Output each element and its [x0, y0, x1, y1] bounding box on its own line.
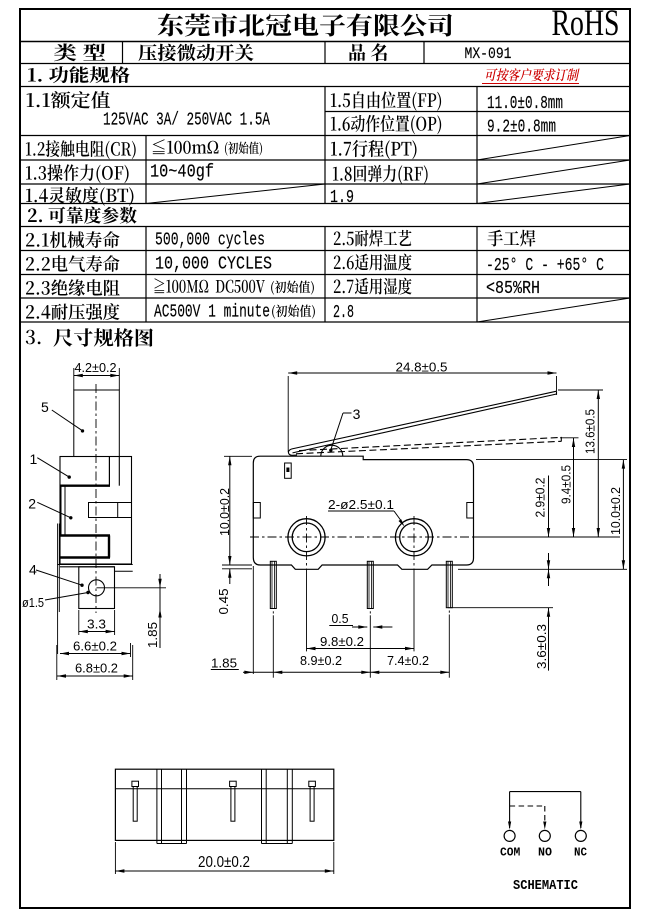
svg-text:COM: COM — [500, 846, 520, 859]
svg-text:125VAC 3A/ 250VAC 1.5A: 125VAC 3A/ 250VAC 1.5A — [103, 110, 271, 131]
svg-text:9.2±0.8mm: 9.2±0.8mm — [487, 117, 556, 138]
svg-text:6.6±0.2: 6.6±0.2 — [73, 640, 117, 654]
svg-text:13.6±0.5: 13.6±0.5 — [584, 409, 598, 454]
svg-text:7.4±0.2: 7.4±0.2 — [387, 654, 429, 668]
svg-text:20.0±0.2: 20.0±0.2 — [198, 854, 250, 871]
svg-text:6.8±0.2: 6.8±0.2 — [75, 662, 118, 676]
svg-text:3.6±0.3: 3.6±0.3 — [535, 624, 549, 669]
svg-text:0.45: 0.45 — [217, 589, 231, 615]
svg-text:3: 3 — [353, 406, 361, 422]
svg-text:2-ø2.5±0.1: 2-ø2.5±0.1 — [328, 498, 394, 512]
svg-text:11.0±0.8mm: 11.0±0.8mm — [487, 93, 563, 114]
svg-text:1.85: 1.85 — [146, 622, 160, 648]
svg-text:NO: NO — [538, 846, 552, 859]
svg-text:ø1.5: ø1.5 — [22, 596, 44, 610]
svg-text:1.9: 1.9 — [330, 187, 354, 208]
svg-text:2: 2 — [28, 496, 36, 512]
svg-text:2.8: 2.8 — [333, 302, 354, 323]
svg-text:10,000 CYCLES: 10,000 CYCLES — [155, 254, 272, 275]
svg-text:0.5: 0.5 — [332, 612, 349, 626]
svg-text:500,000 cycles: 500,000 cycles — [155, 229, 265, 250]
svg-text:24.8±0.5: 24.8±0.5 — [396, 361, 448, 375]
svg-text:4: 4 — [29, 562, 37, 578]
svg-text:-25° C - +65° C: -25° C - +65° C — [486, 255, 604, 276]
svg-text:RoHS: RoHS — [552, 3, 620, 44]
svg-text:5: 5 — [41, 399, 49, 415]
svg-text:1.85: 1.85 — [211, 657, 237, 671]
svg-text:3.3: 3.3 — [87, 618, 106, 632]
svg-text:9.4±0.5: 9.4±0.5 — [559, 465, 573, 504]
svg-text:SCHEMATIC: SCHEMATIC — [513, 878, 579, 894]
svg-text:1: 1 — [30, 451, 38, 467]
svg-text:4.2±0.2: 4.2±0.2 — [75, 361, 117, 375]
svg-text:10~40gf: 10~40gf — [150, 162, 214, 183]
svg-text:<85%RH: <85%RH — [486, 278, 540, 299]
svg-text:NC: NC — [574, 846, 587, 859]
svg-text:8.9±0.2: 8.9±0.2 — [300, 654, 342, 668]
svg-text:AC500V 1 minute: AC500V 1 minute — [154, 302, 270, 323]
svg-text:MX-091: MX-091 — [465, 45, 512, 63]
svg-text:9.8±0.2: 9.8±0.2 — [320, 635, 364, 649]
svg-text:10.0±0.2: 10.0±0.2 — [609, 487, 623, 535]
svg-text:2.9±0.2: 2.9±0.2 — [533, 478, 547, 518]
